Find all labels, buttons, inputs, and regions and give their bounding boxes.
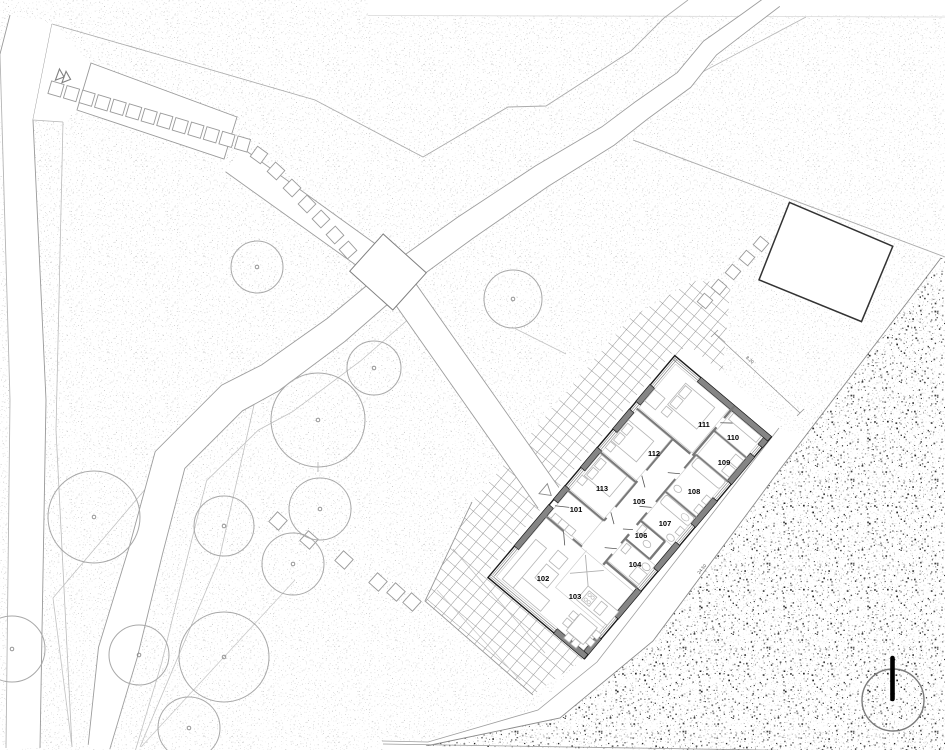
svg-text:106: 106 <box>635 531 648 540</box>
svg-text:113: 113 <box>596 484 608 493</box>
svg-text:108: 108 <box>688 487 701 496</box>
svg-text:102: 102 <box>537 574 550 583</box>
svg-text:105: 105 <box>633 497 646 506</box>
svg-text:104: 104 <box>629 560 642 569</box>
svg-text:112: 112 <box>648 449 660 458</box>
svg-text:110: 110 <box>727 433 739 442</box>
svg-text:101: 101 <box>570 505 583 514</box>
svg-text:111: 111 <box>698 420 710 429</box>
svg-text:109: 109 <box>718 458 731 467</box>
svg-text:107: 107 <box>659 519 672 528</box>
svg-text:103: 103 <box>569 592 582 601</box>
